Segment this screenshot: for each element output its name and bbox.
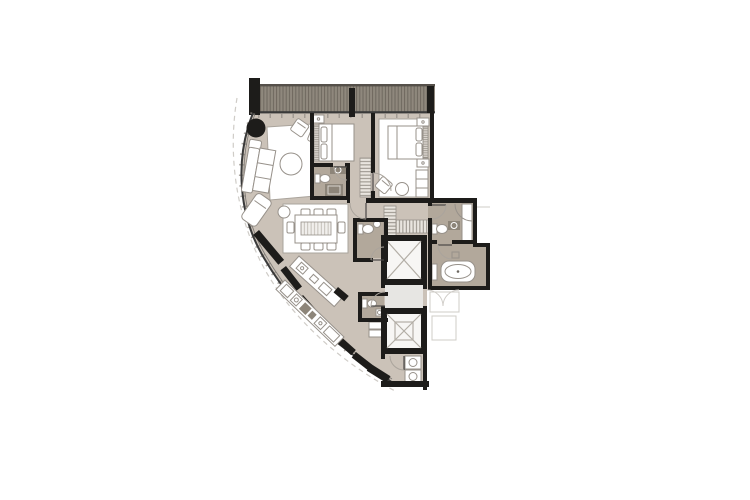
- elevator-lobby: [385, 285, 423, 308]
- pillow: [321, 127, 327, 142]
- side-table: [278, 206, 290, 218]
- round-column: [247, 119, 266, 138]
- floorplan-svg: [0, 0, 750, 500]
- floorplan-canvas: [0, 0, 750, 500]
- facade-column-mid: [349, 88, 355, 117]
- pillow: [321, 144, 327, 159]
- walk-in-closet-2: [396, 220, 432, 233]
- pillow: [416, 143, 422, 156]
- coffee-table: [280, 153, 302, 175]
- wardrobe: [360, 158, 371, 197]
- elevator-shaft-lower: [381, 308, 427, 354]
- headboard: [314, 125, 319, 161]
- utility-room: [405, 356, 421, 383]
- nightstand: [313, 115, 324, 123]
- balcony-strip: [251, 84, 435, 113]
- bench-seat: [416, 170, 428, 197]
- balcony-edge: [251, 84, 435, 86]
- washer-dryer-stack: [405, 356, 421, 369]
- round-table: [396, 183, 409, 196]
- toilet: [315, 174, 320, 183]
- nightstand: [417, 118, 429, 126]
- headboard: [423, 127, 428, 158]
- balcony-decking: [251, 86, 435, 112]
- bath-shelf: [432, 264, 437, 280]
- table-runner: [301, 222, 331, 235]
- shower: [462, 204, 472, 241]
- window-wall-line: [251, 111, 435, 113]
- nightstand: [417, 159, 429, 167]
- facade-column-right: [427, 86, 434, 113]
- facade-column-left: [249, 78, 260, 115]
- toilet: [362, 299, 367, 308]
- pillow: [416, 128, 422, 141]
